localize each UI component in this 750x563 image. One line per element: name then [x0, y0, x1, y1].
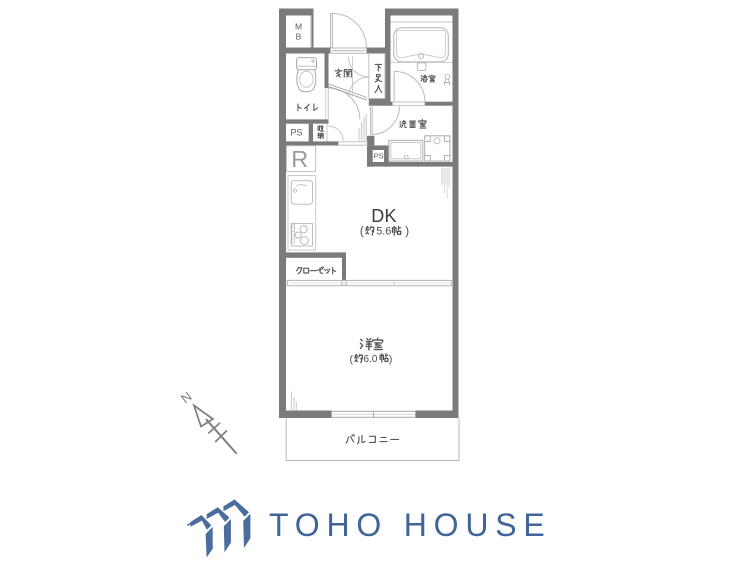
svg-text:B: B — [296, 32, 302, 42]
svg-text:6.0: 6.0 — [363, 354, 377, 365]
svg-text:(: ( — [360, 226, 364, 238]
svg-text:DK: DK — [371, 206, 397, 226]
svg-text:PS: PS — [290, 127, 302, 137]
svg-text:): ) — [405, 226, 409, 238]
svg-text:(: ( — [350, 354, 354, 366]
svg-text:): ) — [389, 354, 393, 366]
svg-text:5.6: 5.6 — [376, 225, 391, 237]
svg-text:M: M — [295, 22, 302, 32]
svg-text:R: R — [291, 146, 308, 172]
svg-text:TOHO HOUSE: TOHO HOUSE — [269, 507, 552, 543]
svg-text:PS: PS — [374, 152, 384, 161]
